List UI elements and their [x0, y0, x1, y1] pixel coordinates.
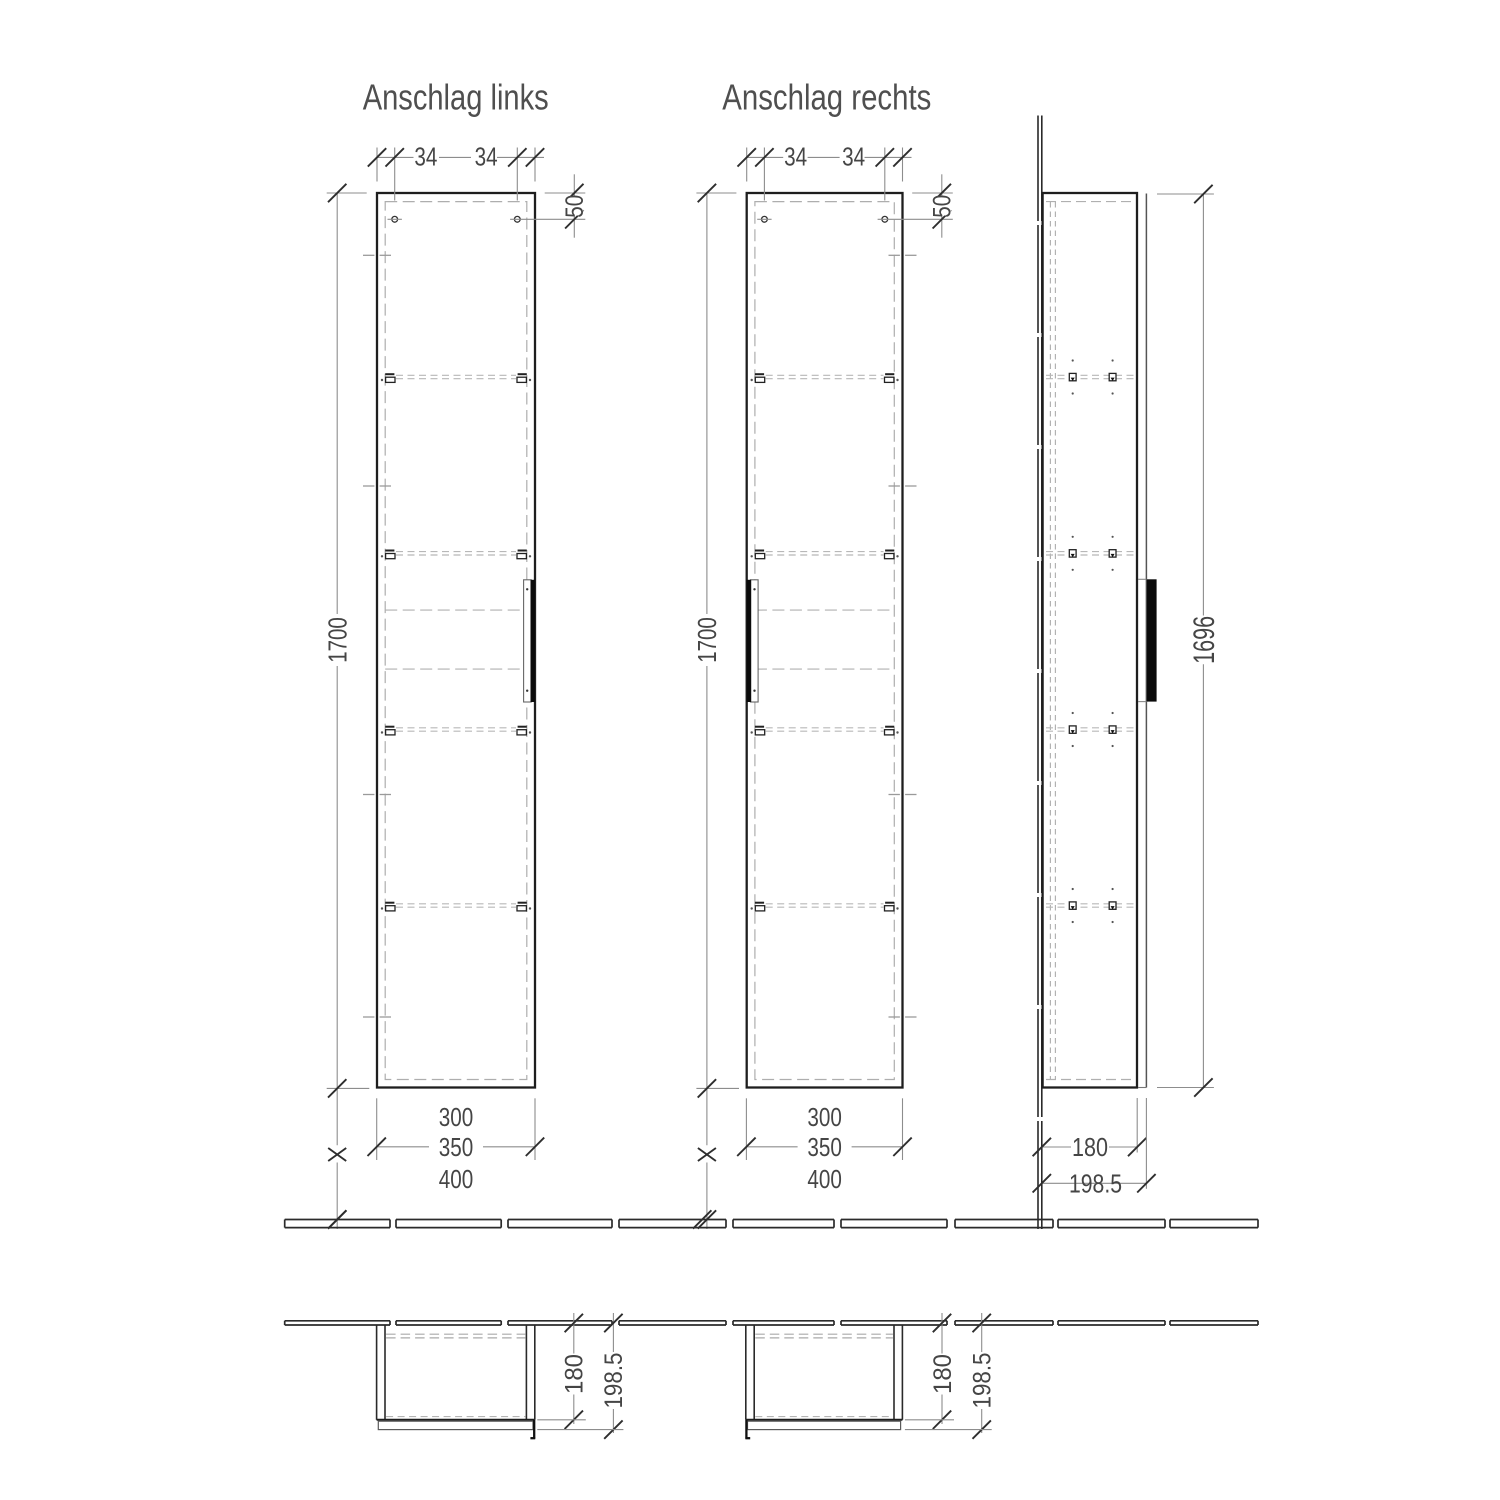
svg-text:34: 34 [414, 142, 437, 172]
svg-text:198.5: 198.5 [1069, 1169, 1122, 1199]
svg-text:300: 300 [439, 1102, 474, 1132]
svg-text:180: 180 [1072, 1132, 1108, 1162]
svg-text:180: 180 [561, 1354, 589, 1394]
svg-text:400: 400 [439, 1164, 474, 1194]
svg-text:1700: 1700 [692, 617, 722, 663]
svg-text:350: 350 [439, 1132, 474, 1162]
svg-text:34: 34 [475, 142, 498, 172]
svg-text:1696: 1696 [1188, 616, 1221, 664]
svg-text:50: 50 [929, 195, 957, 218]
svg-text:180: 180 [929, 1354, 957, 1394]
svg-text:34: 34 [784, 142, 807, 172]
svg-text:Anschlag links: Anschlag links [363, 77, 549, 118]
svg-text:34: 34 [842, 142, 865, 172]
svg-text:198.5: 198.5 [600, 1353, 628, 1409]
svg-text:400: 400 [807, 1164, 842, 1194]
svg-text:1700: 1700 [323, 617, 353, 663]
svg-text:198.5: 198.5 [969, 1353, 997, 1409]
svg-text:300: 300 [807, 1102, 842, 1132]
svg-text:50: 50 [561, 195, 589, 218]
svg-text:Anschlag rechts: Anschlag rechts [722, 77, 931, 118]
svg-text:350: 350 [807, 1132, 842, 1162]
